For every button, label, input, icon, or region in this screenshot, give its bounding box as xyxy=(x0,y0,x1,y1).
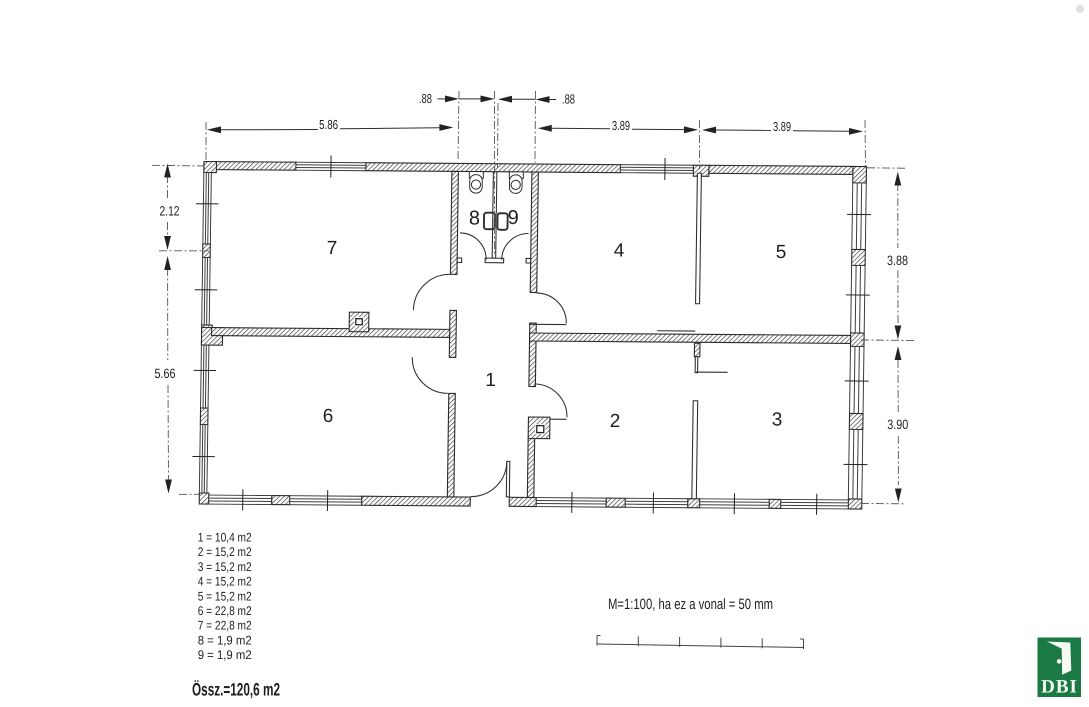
svg-text:2: 2 xyxy=(610,411,621,432)
svg-text:6 = 22,8 m2: 6 = 22,8 m2 xyxy=(198,604,252,618)
svg-text:5.66: 5.66 xyxy=(155,366,176,381)
svg-text:5 = 15,2 m2: 5 = 15,2 m2 xyxy=(198,589,252,603)
svg-text:9 = 1,9 m2: 9 = 1,9 m2 xyxy=(198,648,252,662)
svg-text:DBI: DBI xyxy=(1041,677,1078,698)
svg-text:4 = 15,2 m2: 4 = 15,2 m2 xyxy=(198,575,252,589)
svg-text:2 = 15,2 m2: 2 = 15,2 m2 xyxy=(198,545,252,559)
svg-text:8 = 1,9 m2: 8 = 1,9 m2 xyxy=(198,633,252,647)
svg-text:5: 5 xyxy=(776,242,787,263)
svg-text:9: 9 xyxy=(508,207,519,229)
svg-text:M=1:100, ha ez a vonal = 50 mm: M=1:100, ha ez a vonal = 50 mm xyxy=(608,596,773,613)
svg-text:7: 7 xyxy=(327,238,338,259)
svg-text:3: 3 xyxy=(772,409,783,430)
svg-text:.88: .88 xyxy=(419,91,432,106)
svg-text:.88: .88 xyxy=(562,92,575,107)
svg-text:6: 6 xyxy=(323,406,334,427)
svg-text:5.86: 5.86 xyxy=(319,117,338,132)
svg-text:1 = 10,4 m2: 1 = 10,4 m2 xyxy=(198,531,252,545)
svg-text:Össz.=120,6 m2: Össz.=120,6 m2 xyxy=(192,680,280,700)
svg-text:3.89: 3.89 xyxy=(773,119,791,134)
svg-text:7 = 22,8 m2: 7 = 22,8 m2 xyxy=(198,619,252,633)
svg-text:3.89: 3.89 xyxy=(612,118,630,133)
svg-text:4: 4 xyxy=(614,240,625,261)
svg-text:1: 1 xyxy=(485,370,496,391)
svg-text:2.12: 2.12 xyxy=(160,204,180,219)
svg-text:8: 8 xyxy=(469,207,480,229)
svg-text:3.90: 3.90 xyxy=(887,417,908,432)
svg-text:3 = 15,2 m2: 3 = 15,2 m2 xyxy=(198,560,252,574)
svg-text:3.88: 3.88 xyxy=(887,253,908,268)
